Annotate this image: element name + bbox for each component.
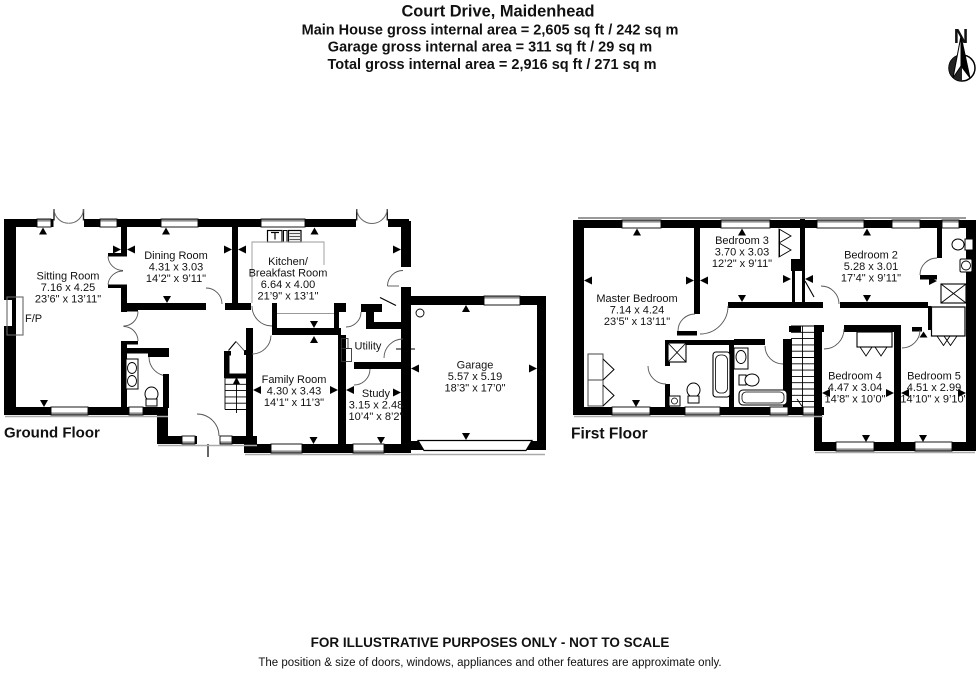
svg-text:7.14 x 4.24: 7.14 x 4.24 [610, 305, 664, 317]
svg-text:21’9" x 13’1": 21’9" x 13’1" [257, 291, 318, 303]
svg-text:Sitting Room: Sitting Room [37, 271, 100, 283]
svg-text:Total gross internal area = 2,: Total gross internal area = 2,916 sq ft … [328, 57, 657, 73]
svg-text:7.16 x 4.25: 7.16 x 4.25 [41, 282, 95, 294]
svg-text:4.31 x 3.03: 4.31 x 3.03 [149, 262, 203, 274]
svg-text:The position & size of doors,: The position & size of doors, windows, a… [258, 657, 721, 669]
svg-text:Dining Room: Dining Room [144, 250, 208, 262]
svg-text:6.64 x 4.00: 6.64 x 4.00 [261, 279, 315, 291]
svg-text:Court Drive, Maidenhead: Court Drive, Maidenhead [401, 3, 594, 21]
svg-text:23’5" x 13’11": 23’5" x 13’11" [604, 316, 670, 328]
svg-text:Garage gross internal area = 3: Garage gross internal area = 311 sq ft /… [328, 40, 652, 56]
svg-text:4.30 x 3.43: 4.30 x 3.43 [267, 386, 321, 398]
svg-text:Kitchen/: Kitchen/ [268, 256, 309, 268]
svg-text:3.15 x 2.48: 3.15 x 2.48 [349, 400, 403, 412]
svg-text:12’2" x 9’11": 12’2" x 9’11" [712, 258, 772, 270]
svg-text:23’6" x 13’11": 23’6" x 13’11" [35, 294, 101, 306]
svg-text:14’8" x 10’0": 14’8" x 10’0" [824, 394, 885, 406]
svg-text:Utility: Utility [355, 341, 382, 353]
svg-text:Main House gross internal area: Main House gross internal area = 2,605 s… [302, 23, 679, 39]
svg-text:Bedroom 5: Bedroom 5 [907, 371, 961, 383]
svg-text:14’10" x 9’10": 14’10" x 9’10" [900, 394, 967, 406]
svg-text:5.28 x 3.01: 5.28 x 3.01 [844, 261, 898, 273]
svg-text:Bedroom 4: Bedroom 4 [828, 371, 882, 383]
svg-text:Master Bedroom: Master Bedroom [596, 293, 677, 305]
svg-text:First Floor: First Floor [571, 426, 648, 443]
svg-text:5.57 x 5.19: 5.57 x 5.19 [448, 371, 502, 383]
svg-text:14’1" x 11’3": 14’1" x 11’3" [264, 397, 324, 409]
svg-text:Ground Floor: Ground Floor [4, 425, 100, 442]
svg-text:18’3" x 17’0": 18’3" x 17’0" [444, 383, 505, 395]
svg-text:10’4" x 8’2": 10’4" x 8’2" [349, 411, 404, 423]
svg-text:Garage: Garage [457, 360, 494, 372]
svg-text:F/P: F/P [25, 313, 42, 325]
svg-text:3.70 x 3.03: 3.70 x 3.03 [715, 247, 769, 259]
svg-text:Bedroom 2: Bedroom 2 [844, 250, 898, 262]
svg-text:Family Room: Family Room [262, 374, 327, 386]
svg-text:Study: Study [362, 388, 391, 400]
svg-text:Breakfast Room: Breakfast Room [249, 268, 328, 280]
svg-text:14’2" x 9’11": 14’2" x 9’11" [146, 273, 206, 285]
svg-text:17’4" x 9’11": 17’4" x 9’11" [841, 273, 901, 285]
svg-text:4.51 x 2.99: 4.51 x 2.99 [907, 382, 961, 394]
svg-text:Bedroom 3: Bedroom 3 [715, 235, 769, 247]
svg-text:4.47 x 3.04: 4.47 x 3.04 [828, 382, 882, 394]
svg-text:FOR ILLUSTRATIVE PURPOSES ONLY: FOR ILLUSTRATIVE PURPOSES ONLY - NOT TO … [311, 635, 670, 650]
